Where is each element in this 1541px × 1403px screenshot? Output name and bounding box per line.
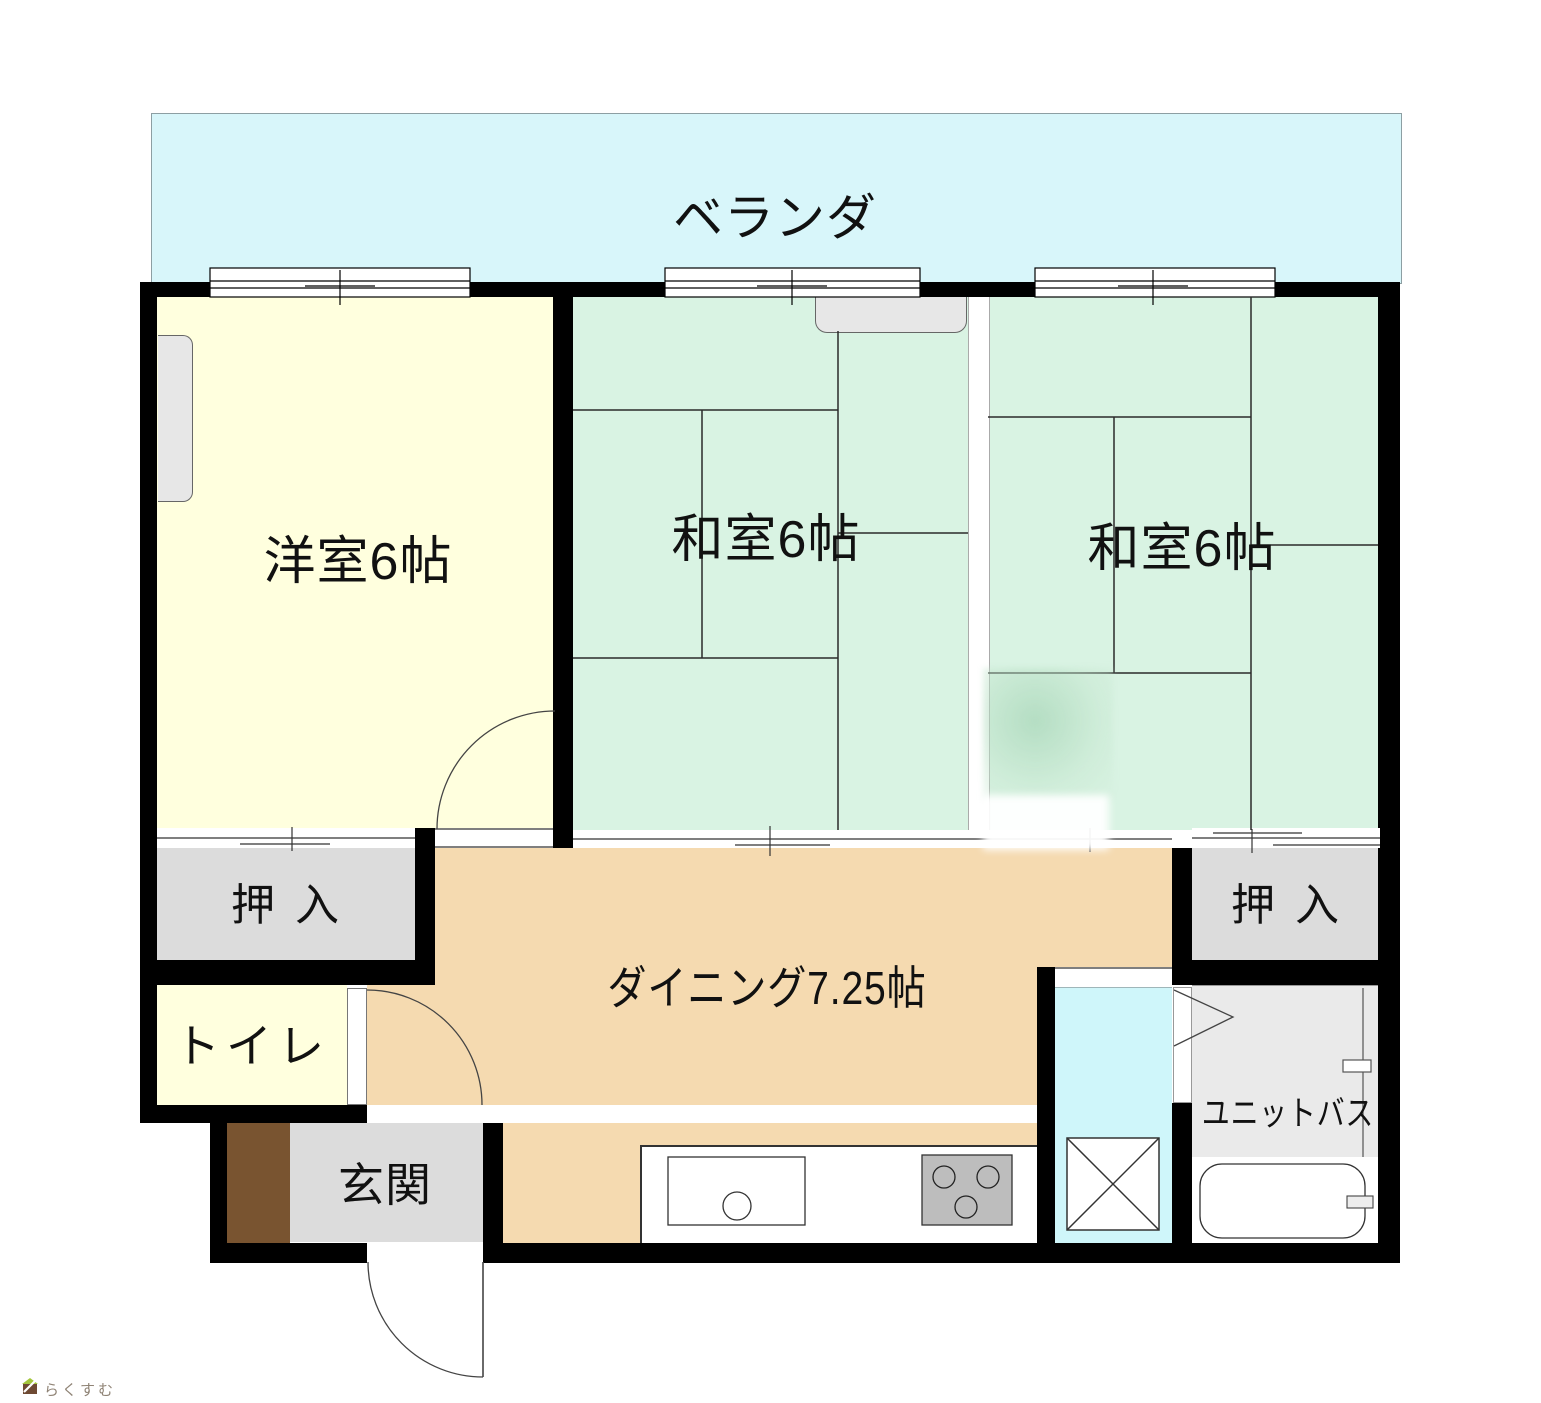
logo-house-icon <box>22 1378 38 1394</box>
western-room-label: 洋室6帖 <box>264 536 453 588</box>
western-door-arc <box>437 711 555 829</box>
entrance-door-arc <box>368 1262 483 1377</box>
bathtub-faucet <box>1347 1196 1373 1208</box>
entrance-label: 玄関 <box>338 1162 432 1208</box>
green-smudge-artifact <box>983 668 1113 800</box>
window-japanese-right <box>1035 268 1275 305</box>
veranda-label: ベランダ <box>673 193 877 243</box>
japanese-center-label: 和室6帖 <box>672 514 861 566</box>
toilet-door-arc <box>367 990 482 1105</box>
logo: らくすむ <box>22 1378 142 1398</box>
floor-plan: ベランダ 洋室6帖 和室6帖 和室6帖 押入 押入 トイレ 玄関 ダイニング7.… <box>0 0 1541 1403</box>
bath-towel-bar <box>1343 1060 1371 1072</box>
kitchen-sink <box>668 1157 805 1225</box>
japanese-right-label: 和室6帖 <box>1088 523 1277 575</box>
closet-right-label: 押入 <box>1231 884 1359 928</box>
window-japanese-center <box>665 268 920 305</box>
bathtub <box>1200 1164 1365 1238</box>
window-western <box>210 268 470 305</box>
tatami-lines-center <box>573 331 968 830</box>
white-smudge-artifact <box>983 795 1109 850</box>
closet-left-label: 押入 <box>231 884 359 928</box>
kitchen-stove <box>922 1155 1012 1225</box>
bath-folding-door <box>1174 990 1233 1046</box>
logo-text: らくすむ <box>44 1379 116 1400</box>
unit-bath-label: ユニットバス <box>1202 1097 1374 1131</box>
dining-label: ダイニング7.25帖 <box>607 965 926 1011</box>
toilet-label: トイレ <box>174 1023 330 1069</box>
washing-machine-pan <box>1067 1138 1159 1230</box>
